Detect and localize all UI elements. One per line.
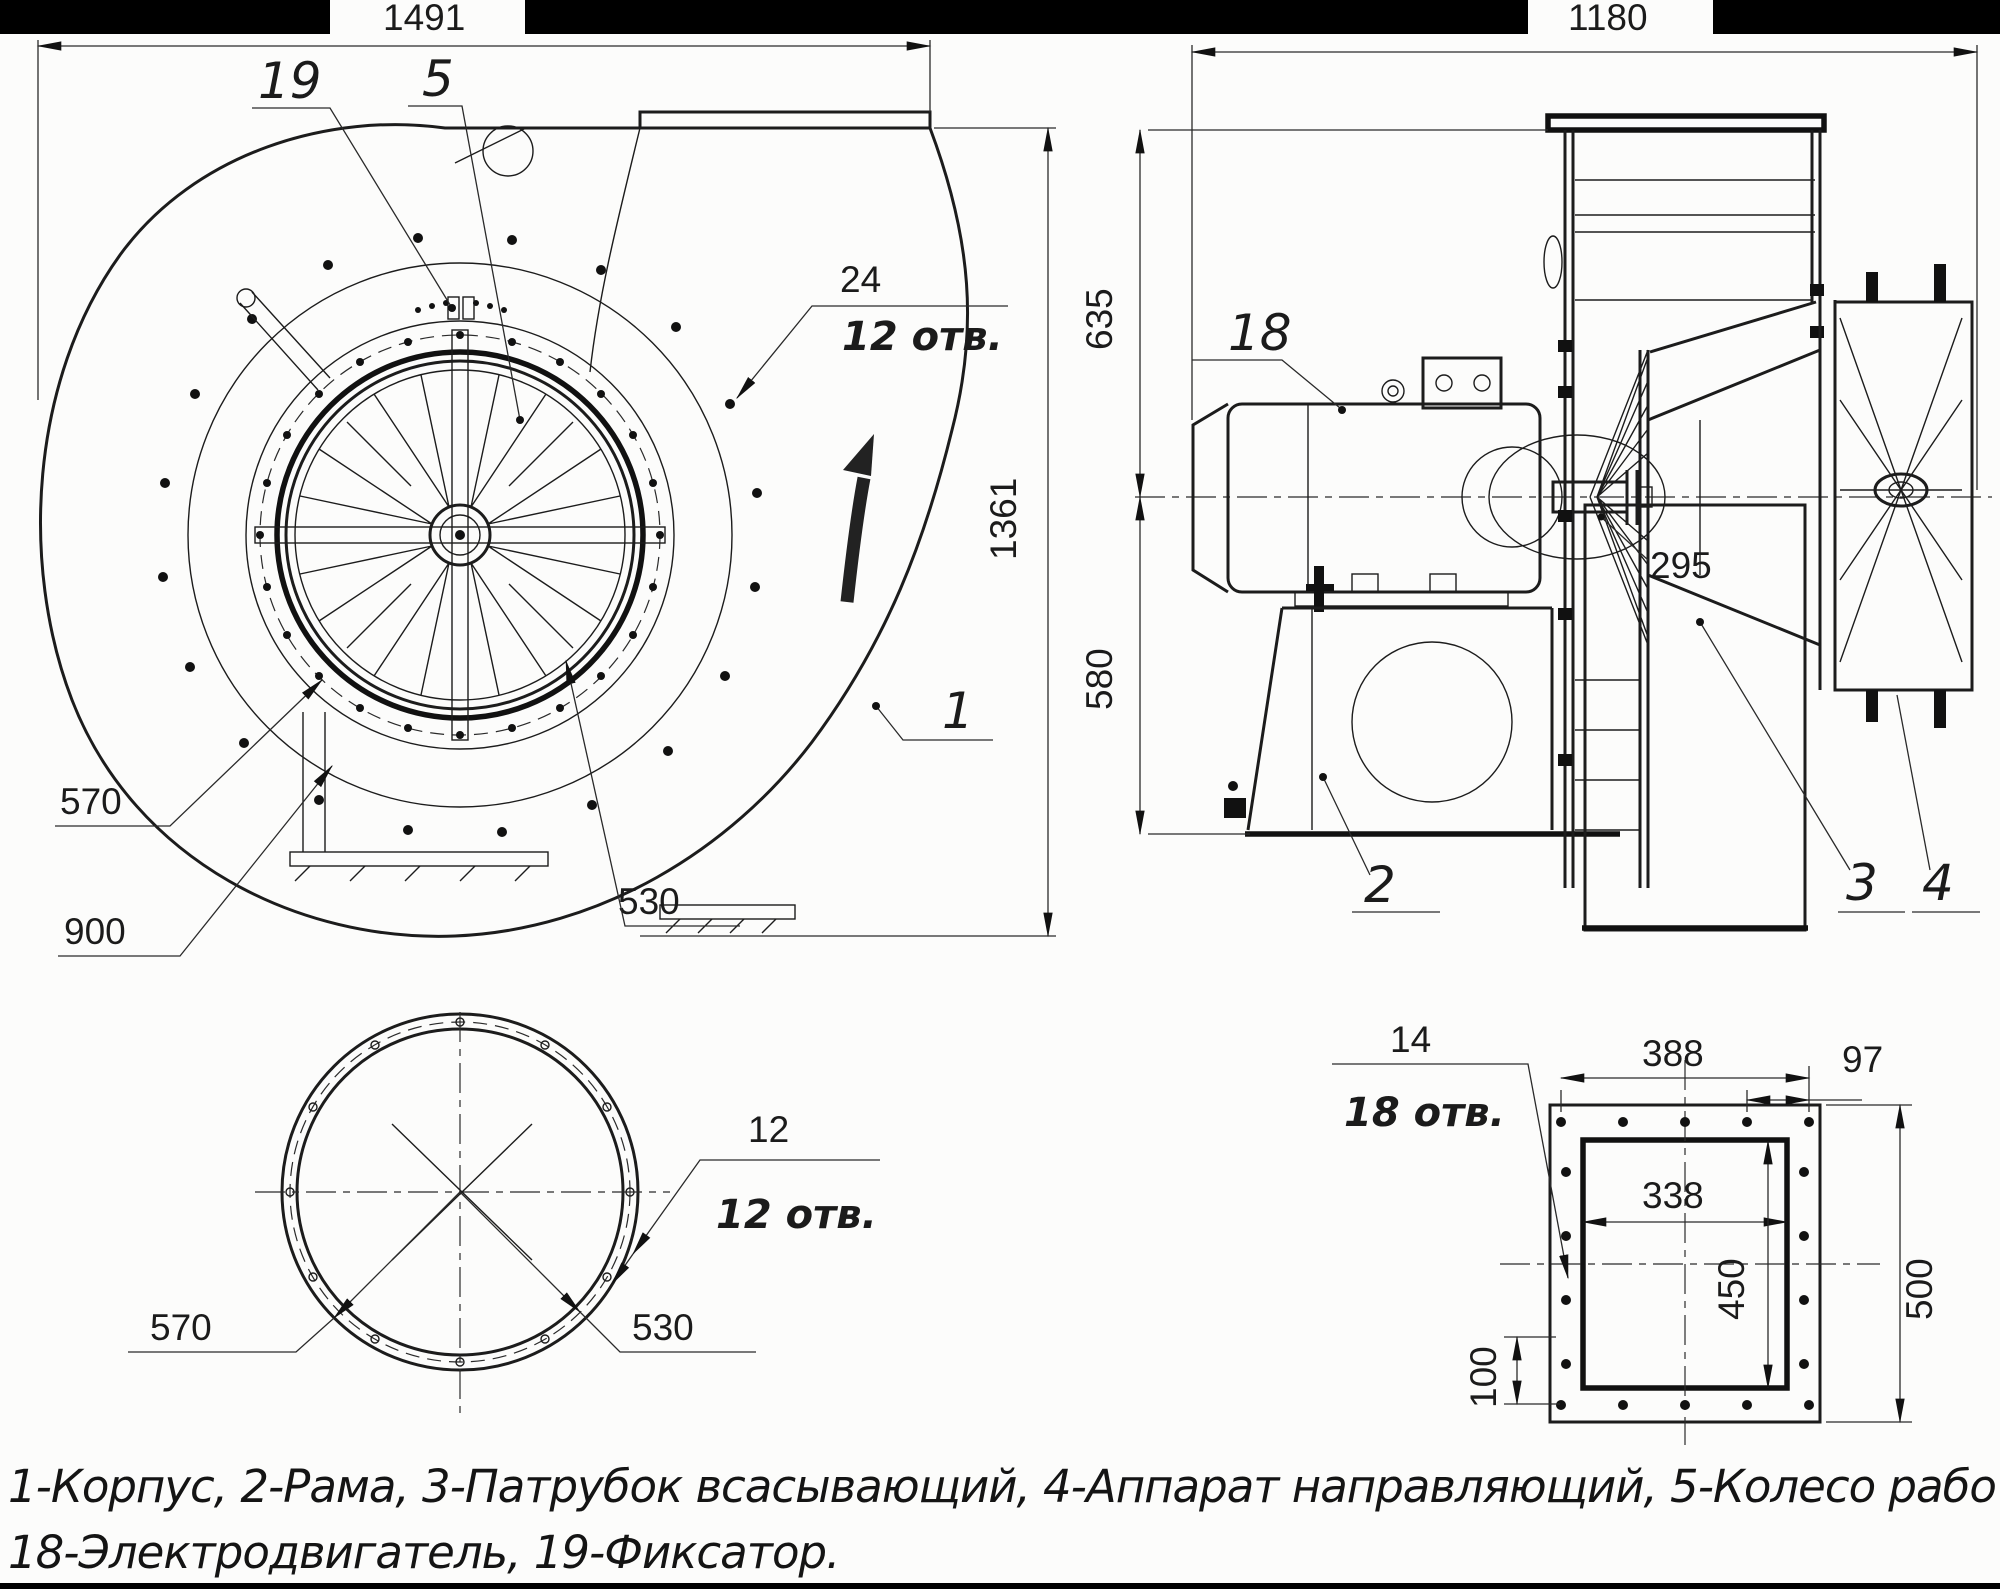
svg-text:3: 3 <box>1846 854 1878 912</box>
svg-text:12 отв.: 12 отв. <box>716 1192 877 1238</box>
svg-text:900: 900 <box>64 911 126 952</box>
svg-text:500: 500 <box>1899 1258 1940 1320</box>
svg-text:530: 530 <box>632 1307 694 1348</box>
legend-line1: 1-Корпус, 2-Рама, 3-Патрубок всасывающий… <box>8 1460 2000 1513</box>
inlet-flange-view: 570 530 12 12 отв. <box>128 1012 880 1415</box>
fixator-detail <box>415 297 507 319</box>
dim-1361: 1361 <box>983 478 1024 560</box>
bottom-bar <box>0 1583 2000 1589</box>
svg-text:4: 4 <box>1922 854 1954 912</box>
dim-inlet-530: 530 <box>460 1192 756 1352</box>
fan-drawing: 1491 1361 19 5 24 12 отв. 1 <box>0 0 2000 1589</box>
callout-18: 18 <box>1192 304 1346 414</box>
svg-text:18: 18 <box>1228 304 1292 362</box>
motor-rail <box>1295 592 1508 606</box>
discharge-flange <box>640 112 930 128</box>
dim-front-height: 1361 <box>640 128 1056 936</box>
outlet-flange-view: 388 97 338 450 500 100 <box>1332 1019 1940 1445</box>
legend-line2: 18-Электродвигатель, 19-Фиксатор. <box>8 1526 839 1579</box>
callout-2: 2 <box>1319 773 1440 914</box>
svg-text:100: 100 <box>1463 1346 1504 1408</box>
suction-box <box>1582 350 1820 930</box>
svg-text:97: 97 <box>1842 1039 1883 1080</box>
svg-text:12: 12 <box>748 1109 789 1150</box>
svg-text:388: 388 <box>1642 1033 1704 1074</box>
dim-100: 100 <box>1463 1337 1560 1408</box>
dim-295: 295 <box>1598 514 1712 587</box>
dim-front-530: 530 <box>566 661 740 926</box>
hole-count-12: 12 отв. <box>842 314 1003 360</box>
callout-3: 3 <box>1696 618 1905 912</box>
svg-text:5: 5 <box>422 50 454 108</box>
dim-635: 635 <box>1079 288 1120 350</box>
outlet-top-flange <box>1548 116 1824 130</box>
rotation-arrow <box>843 434 874 602</box>
eyebolt <box>1382 380 1404 402</box>
svg-text:295: 295 <box>1650 545 1712 586</box>
callout-inlet-holes: 12 12 отв. <box>612 1109 880 1284</box>
svg-text:2: 2 <box>1364 856 1396 914</box>
dim-1491: 1491 <box>383 0 465 38</box>
support-pedestal <box>290 712 548 881</box>
dim-side-width: 1180 <box>1192 0 1977 490</box>
svg-text:19: 19 <box>258 52 322 110</box>
scroll-casing-outline <box>41 125 968 937</box>
hole-dia-24: 24 <box>840 259 881 300</box>
side-view: 1180 635 580 295 18 2 <box>1079 0 1992 930</box>
svg-text:450: 450 <box>1711 1258 1752 1320</box>
dim-1180: 1180 <box>1568 0 1648 38</box>
svg-text:1: 1 <box>942 682 974 740</box>
outlet-inner-wall <box>590 128 640 372</box>
dim-side-580: 580 <box>1079 497 1250 834</box>
dim-inlet-570: 570 <box>128 1192 460 1352</box>
frame-hole <box>1352 642 1512 802</box>
flange-bracket-hole <box>483 126 533 176</box>
joint-bolts <box>1558 284 1824 766</box>
legend: 1-Корпус, 2-Рама, 3-Патрубок всасывающий… <box>8 1460 2000 1579</box>
svg-text:338: 338 <box>1642 1175 1704 1216</box>
callout-outlet-holes: 14 18 отв. <box>1332 1019 1568 1278</box>
svg-text:18 отв.: 18 отв. <box>1344 1090 1505 1136</box>
dim-338: 338 <box>1583 1175 1787 1222</box>
dim-front-570: 570 <box>55 680 322 826</box>
svg-text:570: 570 <box>60 781 122 822</box>
front-view: 1491 1361 19 5 24 12 отв. 1 <box>38 0 1056 956</box>
guide-apparatus <box>1820 264 1972 728</box>
motor <box>1193 358 1562 612</box>
svg-text:530: 530 <box>618 881 680 922</box>
callout-1: 1 <box>872 682 993 740</box>
support-base-right <box>660 905 795 933</box>
dim-97: 97 <box>1747 1039 1883 1112</box>
dim-side-635: 635 <box>1079 130 1548 497</box>
casing-hook <box>1544 236 1562 288</box>
svg-text:570: 570 <box>150 1307 212 1348</box>
apparatus-blades <box>1840 318 1962 662</box>
frame <box>1224 608 1620 834</box>
anchor-bolt <box>1224 798 1246 818</box>
svg-text:14: 14 <box>1390 1019 1431 1060</box>
dim-580: 580 <box>1079 648 1120 710</box>
drawing-page: 1491 1361 19 5 24 12 отв. 1 <box>0 0 2000 1589</box>
